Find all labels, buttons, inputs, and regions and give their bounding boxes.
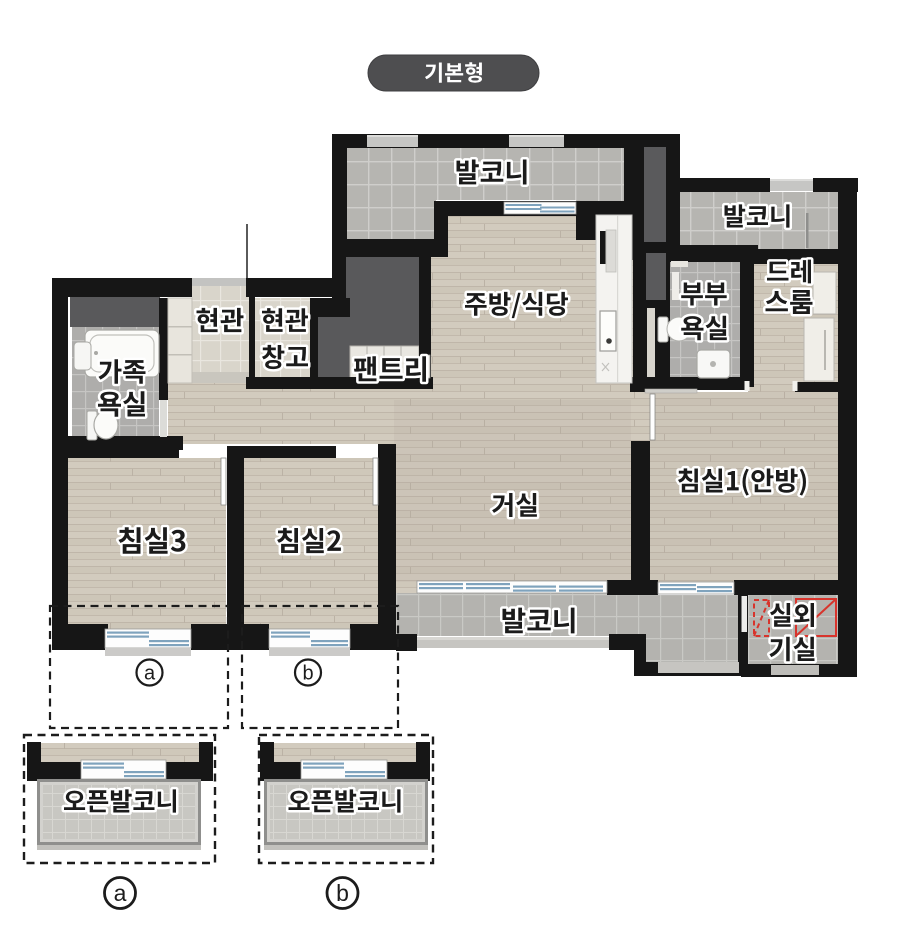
svg-text:a: a — [114, 880, 127, 906]
svg-text:b: b — [336, 880, 349, 906]
svg-text:a: a — [144, 663, 156, 685]
svg-text:b: b — [302, 663, 313, 685]
